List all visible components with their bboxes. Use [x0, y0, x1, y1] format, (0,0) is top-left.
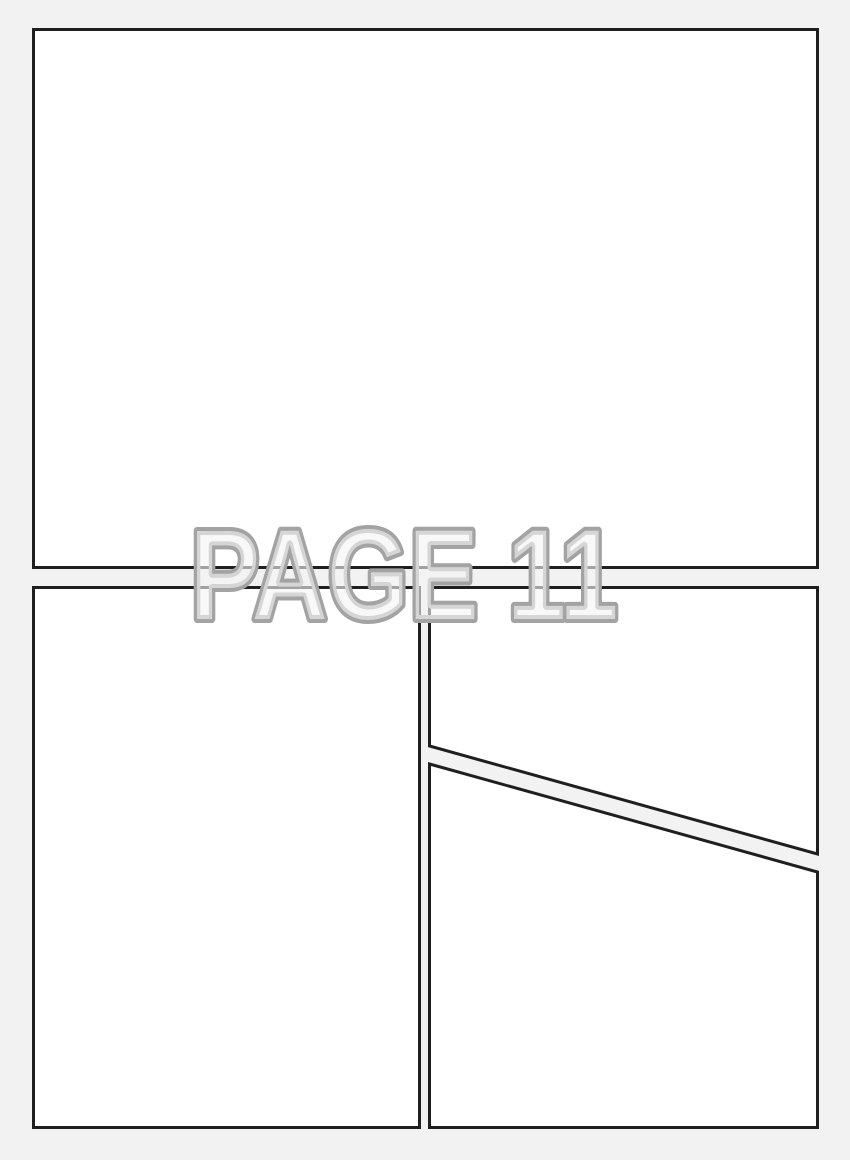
comic-page: PAGE 11 [0, 0, 850, 1160]
panel-top [34, 30, 818, 568]
page-number-label: PAGE 11 [190, 504, 618, 647]
page-canvas: PAGE 11 [0, 0, 850, 1160]
panel-bottom-left [34, 588, 420, 1128]
